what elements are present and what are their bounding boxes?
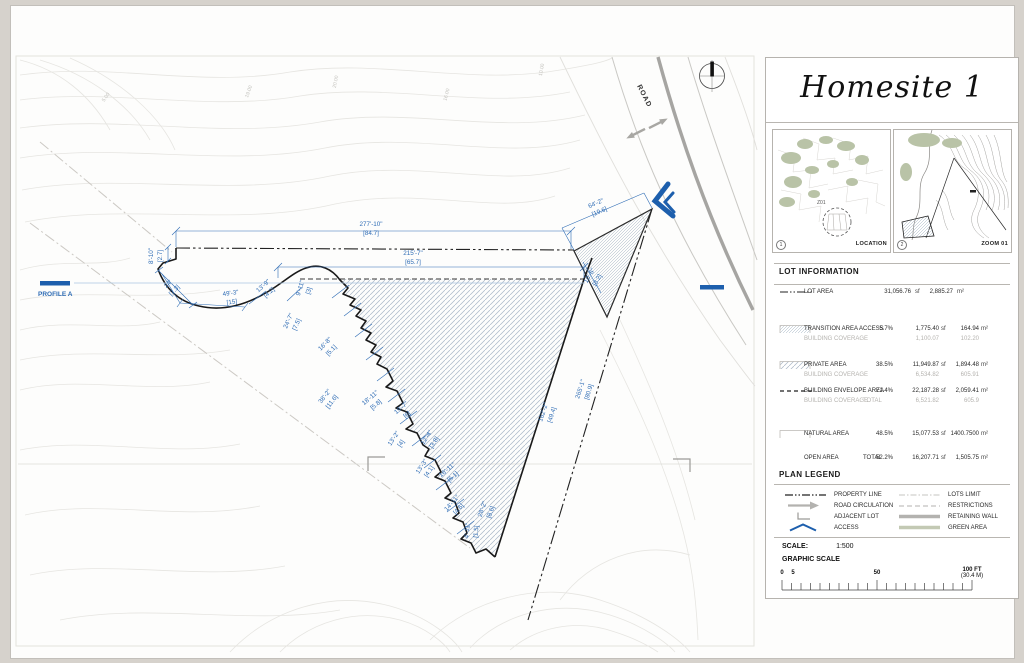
envelope-coverage-row: BUILDING COVERAGE TOTAL 6,521.82 605.9 [779,397,1012,407]
svg-text:[65.7]: [65.7] [405,259,421,266]
road-circulation-arrows [625,116,669,142]
contour-label: 16.00 [443,88,452,102]
road-circulation-symbol [784,501,828,510]
access-arrow-icon [655,184,674,216]
road-label: ROAD [635,84,652,109]
access-symbol [784,523,828,532]
svg-text:[84.7]: [84.7] [363,230,379,237]
svg-text:[4]: [4] [397,439,407,449]
svg-text:50: 50 [874,570,881,576]
green-area-symbol [898,523,942,532]
lots-limit-symbol [898,490,942,499]
svg-text:[1.5]: [1.5] [472,525,480,538]
svg-text:277'-10": 277'-10" [359,221,382,228]
adjacent-lot-symbol [784,512,828,521]
svg-text:5: 5 [791,570,795,576]
profile-a-marker: PROFILE A [38,281,73,298]
location-map: Z01 1 LOCATION [772,129,891,253]
contour-lines [20,58,698,652]
scale-label: SCALE: [782,543,808,550]
retaining-wall-symbol [898,512,942,521]
profile-a-label: PROFILE A [38,291,73,298]
plan-legend-header: PLAN LEGEND [779,470,841,479]
map-number-badge: 2 [897,240,907,250]
contour-label: 20.00 [332,75,341,89]
transition-area-row: TRANSITION AREA ACCESS 5.7% 1,775.40 sf … [779,325,1012,335]
zone-tag: Z01 [817,200,826,206]
lot-area-row: LOT AREA 31,056.76 sf 2,885.27 m² [779,288,1012,298]
restrictions-symbol [898,501,942,510]
map-number-badge: 1 [776,240,786,250]
graphic-scale-label: GRAPHIC SCALE [782,556,840,563]
svg-text:215'-7": 215'-7" [403,250,423,257]
green-areas [779,136,869,207]
svg-text:9'-11": 9'-11" [295,280,306,297]
property-line-symbol [784,490,828,499]
contour-label: 10.00 [538,63,546,77]
svg-text:[15]: [15] [226,298,238,306]
zoom-map: 2 ZOOM 01 [893,129,1012,253]
lot-highlight-circle [823,208,851,236]
building-envelope-row: BUILDING ENVELOPE AREA 71.4% 22,187.28 s… [779,387,1012,397]
scale-value: 1:500 [836,543,854,550]
private-area-row: PRIVATE AREA 38.5% 11,949.87 sf 1,894.48… [779,361,1012,371]
location-map-label: LOCATION [856,241,887,247]
svg-text:[3]: [3] [305,286,314,295]
private-coverage-row: BUILDING COVERAGE 6,534.82 605.91 [779,371,1012,381]
open-area-row: OPEN AREA TOTAL 52.2% 16,207.71 sf 1,505… [779,454,1012,464]
zoom-map-graphic [894,130,1011,240]
graphic-scale-bar: 0 5 50 100 FT (30.4 M) [780,566,1000,592]
svg-text:0: 0 [780,570,784,576]
road [560,57,757,386]
sheet-title: Homesite 1 [766,70,1018,105]
transition-coverage-row: BUILDING COVERAGE 1,100.07 102.20 [779,335,1012,345]
page: 5.00 19.00 20.00 16.00 10.00 ROAD [0,0,1024,663]
svg-text:(30.4 M): (30.4 M) [961,573,983,579]
title-block-panel: Homesite 1 [765,57,1019,599]
contour-label: 19.00 [244,85,254,99]
location-map-graphic: Z01 [773,130,890,240]
natural-area-row: NATURAL AREA 48.5% 15,077.53 sf 1400.750… [779,430,1012,440]
north-arrow-icon [699,60,725,92]
dimension-lines [74,193,652,534]
zoom-map-label: ZOOM 01 [981,241,1008,247]
transition-area-hatch [574,209,652,317]
svg-text:8'-10": 8'-10" [148,248,155,264]
scale-row: SCALE:1:500 [782,543,854,550]
lot-information-header: LOT INFORMATION [779,267,859,276]
svg-text:[2.7]: [2.7] [157,250,164,263]
profile-road-marker [700,285,724,290]
svg-text:49'-3": 49'-3" [222,289,239,298]
